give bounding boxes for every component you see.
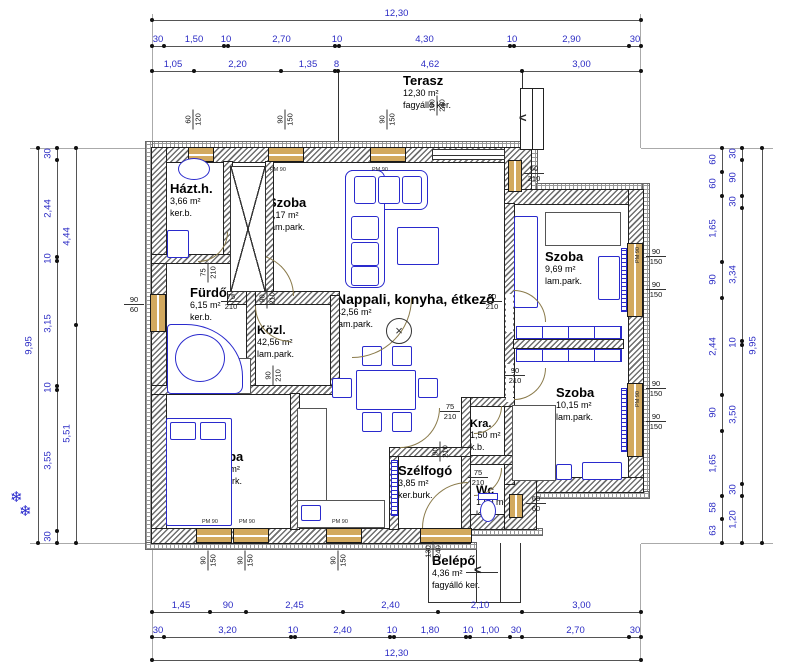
furniture <box>301 505 321 521</box>
dimension-label: 3,50 <box>728 392 739 436</box>
dimension-line <box>152 660 641 661</box>
furniture <box>418 378 438 398</box>
dimension-tick <box>55 146 59 150</box>
dimension-label: 30 <box>728 180 739 224</box>
room-label-hazth: Házt.h.3,66 m²ker.b. <box>170 182 213 218</box>
dimension-tick <box>55 388 59 392</box>
dimension-label: 30 <box>612 625 658 636</box>
room-finish: k.b. <box>470 442 501 452</box>
furniture <box>545 212 621 246</box>
room-name: Házt.h. <box>170 182 213 196</box>
washbasin-oval <box>178 158 210 180</box>
dimension-tick <box>720 296 724 300</box>
dimension-line <box>722 148 723 543</box>
room-area: 10,15 m² <box>556 400 594 412</box>
extension-line <box>640 544 641 662</box>
room-name: Szoba <box>545 250 583 264</box>
door-opening <box>506 294 513 332</box>
room-label-szoba-8: Szoba8,17 m²lam.park. <box>268 196 306 232</box>
size-fraction-label: 90150 <box>236 551 255 571</box>
dimension-label: 60 <box>708 162 719 206</box>
dimension-tick <box>740 206 744 210</box>
furniture <box>170 422 196 440</box>
dimension-label: 90 <box>708 391 719 435</box>
dimension-label: 10 <box>489 34 535 45</box>
room-name: Szoba <box>556 386 594 400</box>
insulation-layer <box>643 184 649 498</box>
size-fraction-label: 6060 <box>526 494 546 513</box>
dimension-tick <box>74 323 78 327</box>
dimension-tick <box>341 610 345 614</box>
size-numerator: 90 <box>646 280 666 289</box>
dimension-tick <box>760 541 764 545</box>
dimension-label: 2,70 <box>553 625 599 636</box>
size-denominator: 210 <box>440 411 460 421</box>
size-denominator: 210 <box>440 442 450 462</box>
room-label-szoba-10: Szoba10,15 m²lam.park. <box>556 386 594 422</box>
dimension-tick <box>740 146 744 150</box>
extension-line <box>338 72 339 149</box>
dimension-line <box>76 148 77 543</box>
size-denominator: 120 <box>193 110 203 130</box>
size-numerator: 90 <box>329 551 338 571</box>
dimension-line <box>152 612 641 613</box>
dimension-label: 2,90 <box>549 34 595 45</box>
dimension-label: 9,95 <box>24 323 35 367</box>
furniture <box>351 216 379 240</box>
size-denominator: 210 <box>524 173 544 183</box>
dimension-tick <box>760 146 764 150</box>
dimension-tick <box>150 610 154 614</box>
snowflake-icon: ❄ <box>19 502 32 520</box>
terrace-stairs-divider <box>532 88 533 150</box>
room-name: Terasz <box>403 74 451 88</box>
furniture <box>598 256 620 300</box>
dimension-tick <box>55 158 59 162</box>
dimension-tick <box>436 610 440 614</box>
extension-line <box>152 544 153 662</box>
room-name: Szoba <box>268 196 306 210</box>
dimension-label: 1,65 <box>708 441 719 485</box>
dimension-label: 3,55 <box>43 438 54 482</box>
size-denominator: 150 <box>387 110 397 130</box>
lintel-label: PM 90 <box>372 167 388 173</box>
dimension-line <box>152 71 641 72</box>
wall-segment <box>514 340 623 348</box>
dimension-label: 10 <box>314 34 360 45</box>
size-denominator: 210 <box>221 301 241 311</box>
dimension-label: 30 <box>493 625 539 636</box>
dimension-label: 2,45 <box>272 600 318 611</box>
dimension-label: 8 <box>314 59 360 70</box>
dimension-tick <box>740 482 744 486</box>
size-denominator: 150 <box>208 551 218 571</box>
lintel-label: PM 90 <box>635 391 641 407</box>
lintel-label: PM 90 <box>202 519 218 525</box>
dimension-line <box>152 20 641 21</box>
window <box>370 147 406 162</box>
room-finish: lam.park. <box>268 222 306 232</box>
dimension-label: 5,51 <box>62 412 73 456</box>
dimension-tick <box>639 18 643 22</box>
dimension-label: 2,40 <box>320 625 366 636</box>
room-label-szoba-9: Szoba9,69 m²lam.park. <box>545 250 583 286</box>
furniture <box>200 422 226 440</box>
terrace-door <box>432 149 505 160</box>
size-numerator: 60 <box>526 494 546 503</box>
size-fraction-label: 130240 <box>424 542 443 562</box>
dimension-label: 10 <box>270 625 316 636</box>
room-area: 9,69 m² <box>545 264 583 276</box>
dimension-tick <box>740 541 744 545</box>
room-area: 3,66 m² <box>170 196 213 208</box>
size-numerator: 90 <box>482 292 502 301</box>
dimension-label: 10 <box>43 237 54 281</box>
insulation-layer <box>536 492 649 498</box>
extension-line <box>520 543 521 603</box>
size-fraction-label: 75210 <box>199 263 218 283</box>
size-denominator: 150 <box>245 551 255 571</box>
size-denominator: 150 <box>338 551 348 571</box>
dimension-tick <box>520 610 524 614</box>
size-fraction-label: 60210 <box>524 164 544 183</box>
size-numerator: 60 <box>524 164 544 173</box>
size-denominator: 150 <box>646 421 666 431</box>
dimension-tick <box>150 18 154 22</box>
dimension-label: 10 <box>43 366 54 410</box>
size-denominator: 60 <box>124 304 144 314</box>
size-fraction-label: 90210 <box>431 442 450 462</box>
size-fraction-label: 90150 <box>199 551 218 571</box>
lintel-label: PM 90 <box>239 519 255 525</box>
dimension-tick <box>150 658 154 662</box>
bathtub-basin <box>175 334 225 382</box>
size-numerator: 180 <box>428 96 437 116</box>
size-denominator: 240 <box>437 96 447 116</box>
dimension-tick <box>36 541 40 545</box>
dimension-label: 10 <box>728 321 739 365</box>
size-denominator: 210 <box>505 375 525 385</box>
window <box>326 528 362 543</box>
size-denominator: 60 <box>526 503 546 513</box>
dimension-line <box>38 148 39 543</box>
extension-line <box>500 543 501 603</box>
furniture <box>332 378 352 398</box>
furniture <box>378 176 400 204</box>
size-denominator: 150 <box>646 256 666 266</box>
dimension-label: 3,00 <box>559 600 605 611</box>
furniture <box>351 242 379 266</box>
size-fraction-label: 9060 <box>124 295 144 314</box>
dimension-label: 2,40 <box>368 600 414 611</box>
dimension-label: 1,05 <box>150 59 196 70</box>
wall-segment <box>152 148 166 543</box>
size-fraction-label: 90210 <box>482 292 502 311</box>
dimension-label: 3,34 <box>728 252 739 296</box>
dimension-label: 2,20 <box>215 59 261 70</box>
size-fraction-label: 90150 <box>276 110 295 130</box>
dimension-label: 63 <box>708 509 719 553</box>
lintel-label: PM 90 <box>270 167 286 173</box>
dimension-label: 1,20 <box>728 497 739 541</box>
dimension-label: 90 <box>205 600 251 611</box>
size-denominator: 150 <box>646 388 666 398</box>
furniture <box>512 405 556 481</box>
dimension-tick <box>740 194 744 198</box>
furniture <box>362 412 382 432</box>
dimension-tick <box>720 170 724 174</box>
dimension-label: 2,44 <box>43 186 54 230</box>
dimension-label: 3,15 <box>43 301 54 345</box>
size-numerator: 75 <box>468 468 488 477</box>
size-numerator: 90 <box>646 379 666 388</box>
room-finish: lam.park. <box>545 276 583 286</box>
window <box>233 528 269 543</box>
size-numerator: 130 <box>424 542 433 562</box>
dimension-tick <box>55 259 59 263</box>
dimension-label: 2,10 <box>457 600 503 611</box>
size-fraction-label: 90150 <box>646 412 666 431</box>
size-denominator: 150 <box>285 110 295 130</box>
size-fraction-label: 75210 <box>468 468 488 487</box>
dimension-tick <box>520 69 524 73</box>
dimension-label: 2,44 <box>708 324 719 368</box>
room-name: Szélfogó <box>398 464 452 478</box>
window <box>509 494 523 518</box>
size-numerator: 90 <box>199 551 208 571</box>
size-numerator: 90 <box>264 366 273 386</box>
dimension-tick <box>74 146 78 150</box>
dimension-tick <box>639 69 643 73</box>
dimension-tick <box>720 541 724 545</box>
size-fraction-label: 75210 <box>440 402 460 421</box>
lintel-label: PM 90 <box>332 519 348 525</box>
furniture <box>397 227 439 265</box>
size-numerator: 75 <box>199 263 208 283</box>
dimension-label: 90 <box>708 258 719 302</box>
dimension-tick <box>74 541 78 545</box>
size-denominator: 210 <box>482 301 502 311</box>
dimension-tick <box>279 69 283 73</box>
dimension-label: 2,70 <box>259 34 305 45</box>
size-numerator: 90 <box>276 110 285 130</box>
dimension-label: 30 <box>135 625 181 636</box>
dimension-tick <box>639 658 643 662</box>
size-numerator: 90 <box>378 110 387 130</box>
toilet-bowl <box>480 500 496 522</box>
size-fraction-label: 90150 <box>646 280 666 299</box>
dimension-label: 9,95 <box>748 323 759 367</box>
wall-segment <box>505 190 643 204</box>
insulation-layer <box>466 529 542 535</box>
furniture <box>351 266 379 286</box>
dimension-label: 30 <box>612 34 658 45</box>
radiator <box>391 460 398 516</box>
size-numerator: 90 <box>505 366 525 375</box>
wardrobe-row <box>516 349 622 362</box>
extension-line <box>466 572 498 573</box>
dimension-tick <box>720 429 724 433</box>
furniture <box>356 370 416 410</box>
dimension-label: 4,62 <box>407 59 453 70</box>
dimension-tick <box>740 494 744 498</box>
dimension-tick <box>36 146 40 150</box>
size-fraction-label: 90150 <box>378 110 397 130</box>
window <box>508 160 522 192</box>
floor-plan: Terasz12,30 m²fagyálló ker. Házt.h.3,66 … <box>0 0 800 669</box>
furniture <box>582 462 622 480</box>
size-numerator: 90 <box>431 442 440 462</box>
dimension-label: 12,30 <box>374 8 420 19</box>
dimension-label: 4,30 <box>402 34 448 45</box>
dimension-line <box>57 148 58 543</box>
size-fraction-label: 90150 <box>646 247 666 266</box>
room-finish: ker.b. <box>170 208 213 218</box>
window <box>150 294 166 332</box>
furniture <box>392 346 412 366</box>
size-numerator: 90 <box>646 412 666 421</box>
dimension-label: 1,45 <box>158 600 204 611</box>
room-area: 4,36 m² <box>432 568 480 580</box>
dimension-tick <box>720 260 724 264</box>
dimension-label: 1,65 <box>708 207 719 251</box>
room-area: 8,17 m² <box>268 210 306 222</box>
room-finish: lam.park. <box>257 349 294 359</box>
size-numerator: 90 <box>646 247 666 256</box>
size-denominator: 210 <box>273 366 283 386</box>
room-finish: lam.park. <box>556 412 594 422</box>
size-numerator: 60 <box>184 110 193 130</box>
toilet-tank <box>478 493 498 500</box>
furniture <box>402 176 422 204</box>
dimension-tick <box>720 393 724 397</box>
window <box>196 528 232 543</box>
dimension-label: 30 <box>43 515 54 559</box>
size-fraction-label: 75210 <box>221 292 241 311</box>
dimension-line <box>152 637 641 638</box>
entry-arrow-icon: < <box>474 562 482 577</box>
size-numerator: 90 <box>236 551 245 571</box>
size-denominator: 210 <box>267 289 277 309</box>
dimension-tick <box>55 529 59 533</box>
size-numerator: 75 <box>221 292 241 301</box>
door-arc <box>514 290 546 322</box>
size-fraction-label: 90150 <box>646 379 666 398</box>
size-denominator: 150 <box>646 289 666 299</box>
wall-segment <box>152 255 232 263</box>
dimension-label: 10 <box>203 34 249 45</box>
size-fraction-label: 90150 <box>329 551 348 571</box>
size-denominator: 210 <box>468 477 488 487</box>
dimension-tick <box>720 194 724 198</box>
closet-x-box <box>230 166 266 292</box>
size-fraction-label: 90210 <box>505 366 525 385</box>
dimension-label: 4,44 <box>62 214 73 258</box>
dimension-label: 30 <box>43 132 54 176</box>
dimension-label: 12,30 <box>374 648 420 659</box>
wardrobe-row <box>516 326 622 339</box>
lamp-symbol: × <box>386 318 412 344</box>
dimension-tick <box>639 610 643 614</box>
dimension-tick <box>720 517 724 521</box>
dimension-line <box>762 148 763 543</box>
dimension-label: 3,20 <box>205 625 251 636</box>
size-fraction-label: 180240 <box>428 96 447 116</box>
lintel-label: PM 90 <box>635 247 641 263</box>
radiator <box>621 248 627 312</box>
dimension-tick <box>55 541 59 545</box>
size-fraction-label: 90210 <box>264 366 283 386</box>
room-finish: ker.b. <box>190 312 227 322</box>
dimension-tick <box>740 343 744 347</box>
dimension-tick <box>720 494 724 498</box>
wall-segment <box>331 296 339 390</box>
furniture <box>556 464 572 480</box>
size-denominator: 240 <box>433 542 443 562</box>
size-numerator: 90 <box>124 295 144 304</box>
dimension-tick <box>740 158 744 162</box>
size-numerator: 75 <box>440 402 460 411</box>
window <box>268 147 304 162</box>
furniture <box>167 230 189 258</box>
dimension-label: 3,00 <box>559 59 605 70</box>
size-fraction-label: 60120 <box>184 110 203 130</box>
size-denominator: 210 <box>208 263 218 283</box>
furniture <box>354 176 376 204</box>
room-finish: fagyálló ker. <box>432 580 480 590</box>
stair-arrow-icon: < <box>519 110 527 125</box>
radiator <box>621 388 627 452</box>
dimension-tick <box>720 146 724 150</box>
